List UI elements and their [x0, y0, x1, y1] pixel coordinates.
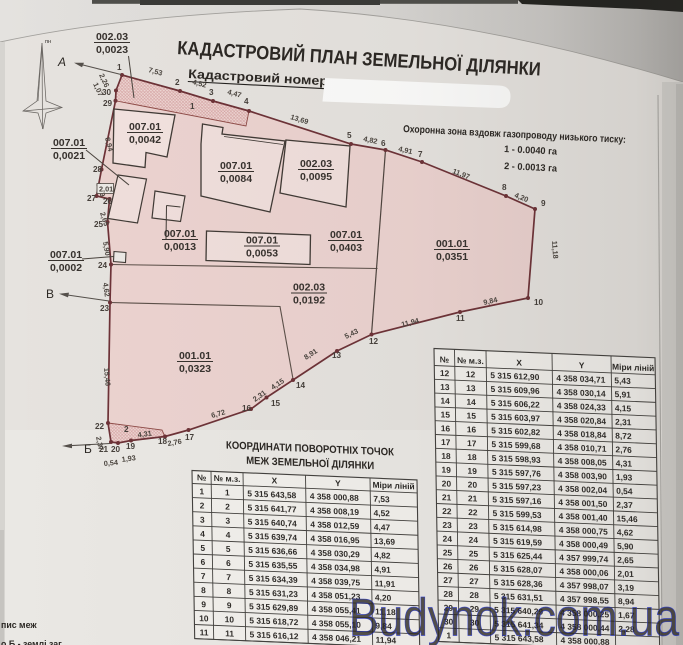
svg-text:Budynok.com.ua: Budynok.com.ua [349, 589, 679, 645]
